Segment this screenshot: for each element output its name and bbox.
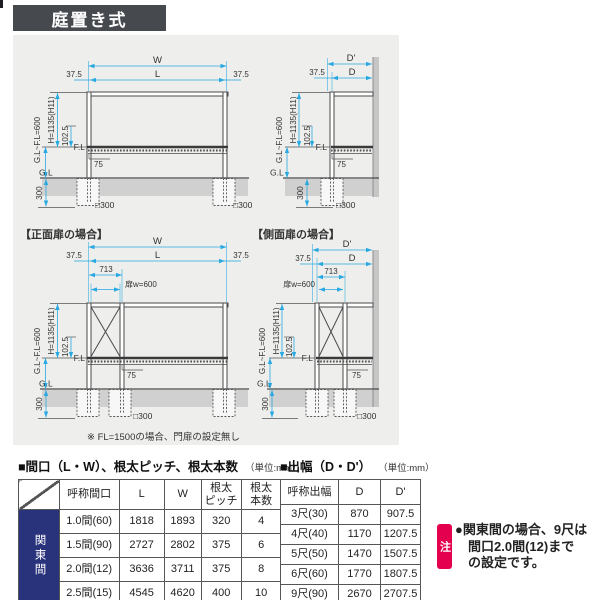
dim-height-label: H=1135(H11) xyxy=(272,307,281,354)
dim-margin: 37.5 xyxy=(295,254,311,263)
gl-label: G.L xyxy=(39,379,53,389)
dim-deck-thickness-label: 102.5 xyxy=(285,336,294,357)
dim-713-label: 713 xyxy=(99,265,113,274)
gl-label: G.L xyxy=(270,168,284,178)
region-label-cell: 関東間 xyxy=(19,510,60,600)
footing-label: □300 xyxy=(133,411,153,421)
table-cell: 1207.5 xyxy=(381,525,421,545)
table-cell: 907.5 xyxy=(381,505,421,525)
dim-75-label: 75 xyxy=(352,371,361,380)
header-cell: 根太ピッチ xyxy=(201,480,241,510)
dim-dprime-label: D' xyxy=(343,239,352,250)
debaba-unit-text: （単位:mm） xyxy=(378,460,434,474)
table-cell: 2802 xyxy=(164,534,201,558)
table-cell: 375 xyxy=(201,534,241,558)
table-cell: 10 xyxy=(241,582,281,600)
table-cell: 1.0間(60) xyxy=(59,510,119,534)
dim-w-label: W xyxy=(153,236,162,247)
table-row: 4尺(40) 1170 1207.5 xyxy=(281,525,421,545)
table-cell: 870 xyxy=(339,505,381,525)
header-cell: L xyxy=(119,480,164,510)
footing-label: □300 xyxy=(357,411,377,421)
table-cell: 8 xyxy=(241,558,281,582)
gate-width-label: 扉w=600 xyxy=(125,279,157,289)
dim-margin-left: 37.5 xyxy=(66,251,82,260)
note-line: ●関東間の場合、9尺は xyxy=(455,522,600,539)
gl-label: G.L xyxy=(257,379,271,389)
note-line: 間口2.0間(12)まで xyxy=(455,539,600,556)
note-line: の設定です。 xyxy=(455,555,600,572)
dim-gl-fl-label: G.L~F.L=600 xyxy=(33,327,42,374)
header-cell: D' xyxy=(381,480,421,505)
table-cell: 6尺(60) xyxy=(281,565,339,585)
table-row: 3尺(30) 870 907.5 xyxy=(281,505,421,525)
table-row: 9尺(90) 2670 2707.5 xyxy=(281,585,421,600)
table-cell: 9尺(90) xyxy=(281,585,339,600)
maguchi-table-section: ■間口（L・W）、根太ピッチ、根太本数 （単位:mm） 呼称間口 L W 根太ピ… xyxy=(18,456,301,600)
dim-margin-left: 37.5 xyxy=(66,70,82,79)
table-cell: 6 xyxy=(241,534,281,558)
table-cell: 2670 xyxy=(339,585,381,600)
table-cell: 1770 xyxy=(339,565,381,585)
header-cell: W xyxy=(164,480,201,510)
header-cell: 根太本数 xyxy=(241,480,281,510)
dim-deck-thickness-label: 102.5 xyxy=(61,336,70,357)
dim-713-label: 713 xyxy=(324,267,338,276)
dim-w-label: W xyxy=(153,55,162,66)
side-elevation-gate: D' 37.5 D 713 扉w=600 G.L~F.L=600 H=1135(… xyxy=(257,239,379,421)
table-cell: 3尺(30) xyxy=(281,505,339,525)
table-cell: 2727 xyxy=(119,534,164,558)
fl-footnote: ※ FL=1500の場合、門扉の設定無し xyxy=(87,429,240,443)
dim-deck-thickness-label: 102.5 xyxy=(303,125,312,146)
caption-side-gate: 【側面扉の場合】 xyxy=(252,226,340,242)
table-cell: 2.5間(15) xyxy=(59,582,119,600)
fl-label: F.L xyxy=(302,353,314,363)
table-cell: 400 xyxy=(201,582,241,600)
dim-gl-fl-label: G.L~F.L=600 xyxy=(275,116,284,163)
table-cell: 320 xyxy=(201,510,241,534)
header-cell: 呼称出幅 xyxy=(281,480,339,505)
debaba-table: 呼称出幅 D D' 3尺(30) 870 907.5 4尺(40) 1170 1… xyxy=(280,479,421,600)
corner-diagonal-cell xyxy=(19,480,60,510)
maguchi-table-title: ■間口（L・W）、根太ピッチ、根太本数 （単位:mm） xyxy=(18,456,301,475)
dim-75-label: 75 xyxy=(127,371,136,380)
table-cell: 4620 xyxy=(164,582,201,600)
table-cell: 375 xyxy=(201,558,241,582)
gate-width-label: 扉w=600 xyxy=(283,279,315,289)
fl-label: F.L xyxy=(74,142,86,152)
debaba-title-text: ■出幅（D・D'） xyxy=(280,456,371,475)
table-cell: 4 xyxy=(241,510,281,534)
dim-margin-right: 37.5 xyxy=(233,251,249,260)
dim-d-label: D xyxy=(349,253,356,264)
debaba-header-row: 呼称出幅 D D' xyxy=(281,480,421,505)
table-cell: 1893 xyxy=(164,510,201,534)
dim-300-label: 300 xyxy=(261,397,270,411)
catalog-page: 庭置き式 xyxy=(0,0,600,600)
note-text: ●関東間の場合、9尺は 間口2.0間(12)まで の設定です。 xyxy=(455,522,600,572)
dim-300-label: 300 xyxy=(35,397,44,411)
table-cell: 2707.5 xyxy=(381,585,421,600)
debaba-table-title: ■出幅（D・D'） （単位:mm） xyxy=(280,456,435,475)
table-cell: 1.5間(90) xyxy=(59,534,119,558)
side-elevation-plain: D' 37.5 D G.L~F.L=600 H=1135(H11) 102.5 … xyxy=(270,53,379,210)
dim-gl-fl-label: G.L~F.L=600 xyxy=(258,327,267,374)
header-cell: D xyxy=(339,480,381,505)
dim-l-label: L xyxy=(155,250,160,261)
table-cell: 1818 xyxy=(119,510,164,534)
dim-margin: 37.5 xyxy=(309,68,325,77)
table-cell: 1807.5 xyxy=(381,565,421,585)
table-cell: 3636 xyxy=(119,558,164,582)
dim-height-label: H=1135(H11) xyxy=(47,307,56,354)
dim-margin-right: 37.5 xyxy=(233,70,249,79)
dim-l-label: L xyxy=(155,69,160,80)
dim-300-label: 300 xyxy=(35,186,44,200)
dim-d-label: D xyxy=(349,67,356,78)
footing-label: □300 xyxy=(336,200,356,210)
front-elevation-gate: W 37.5 L 37.5 713 扉w=600 G.L~F.L=600 H=1… xyxy=(33,236,249,421)
dim-gl-fl-label: G.L~F.L=600 xyxy=(33,116,42,163)
dim-height-label: H=1135(H11) xyxy=(289,96,298,143)
gl-label: G.L xyxy=(39,168,53,178)
fl-label: F.L xyxy=(74,353,86,363)
table-cell: 4尺(40) xyxy=(281,525,339,545)
table-cell: 3711 xyxy=(164,558,201,582)
dim-dprime-label: D' xyxy=(347,53,356,64)
footing-label: □300 xyxy=(95,200,115,210)
dim-75-label: 75 xyxy=(337,160,346,169)
dim-deck-thickness-label: 102.5 xyxy=(61,125,70,146)
debaba-table-section: ■出幅（D・D'） （単位:mm） 呼称出幅 D D' 3尺(30) 870 9… xyxy=(280,456,435,600)
maguchi-title-text: ■間口（L・W）、根太ピッチ、根太本数 xyxy=(18,456,238,475)
table-cell: 1470 xyxy=(339,545,381,565)
maguchi-table: 呼称間口 L W 根太ピッチ 根太本数 関東間 1.0間(60) 1818 18… xyxy=(18,479,282,600)
caption-front-gate: 【正面扉の場合】 xyxy=(20,226,108,242)
table-cell: 2.0間(12) xyxy=(59,558,119,582)
table-cell: 1507.5 xyxy=(381,545,421,565)
table-row: 5尺(50) 1470 1507.5 xyxy=(281,545,421,565)
note-badge: 注 xyxy=(437,524,452,569)
header-cell: 呼称間口 xyxy=(59,480,119,510)
front-elevation-plain: W 37.5 L 37.5 G.L~F.L=600 H=1135(H11) 10… xyxy=(33,55,253,210)
dim-height-label: H=1135(H11) xyxy=(47,96,56,143)
table-cell: 1170 xyxy=(339,525,381,545)
fl-label: F.L xyxy=(316,142,328,152)
maguchi-header-row: 呼称間口 L W 根太ピッチ 根太本数 xyxy=(19,480,282,510)
dim-75-label: 75 xyxy=(94,160,103,169)
footing-label: □300 xyxy=(233,200,253,210)
dim-300-label: 300 xyxy=(296,186,305,200)
table-cell: 4545 xyxy=(119,582,164,600)
table-cell: 5尺(50) xyxy=(281,545,339,565)
table-row: 6尺(60) 1770 1807.5 xyxy=(281,565,421,585)
table-row: 関東間 1.0間(60) 1818 1893 320 4 xyxy=(19,510,282,534)
